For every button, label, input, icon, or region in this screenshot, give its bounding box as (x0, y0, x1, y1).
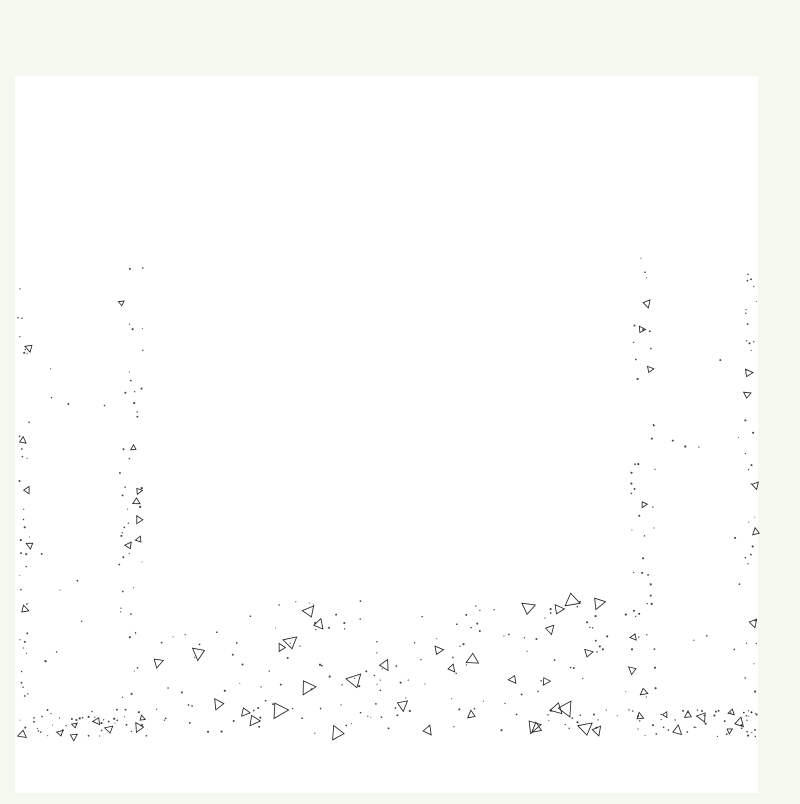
drawing-paper-group (0, 0, 800, 800)
page-root: { "canvas":{"w":800,"h":800,"margin_colo… (0, 0, 800, 800)
drawing-paper (15, 76, 758, 793)
engineering-drawing-canvas (0, 0, 800, 800)
